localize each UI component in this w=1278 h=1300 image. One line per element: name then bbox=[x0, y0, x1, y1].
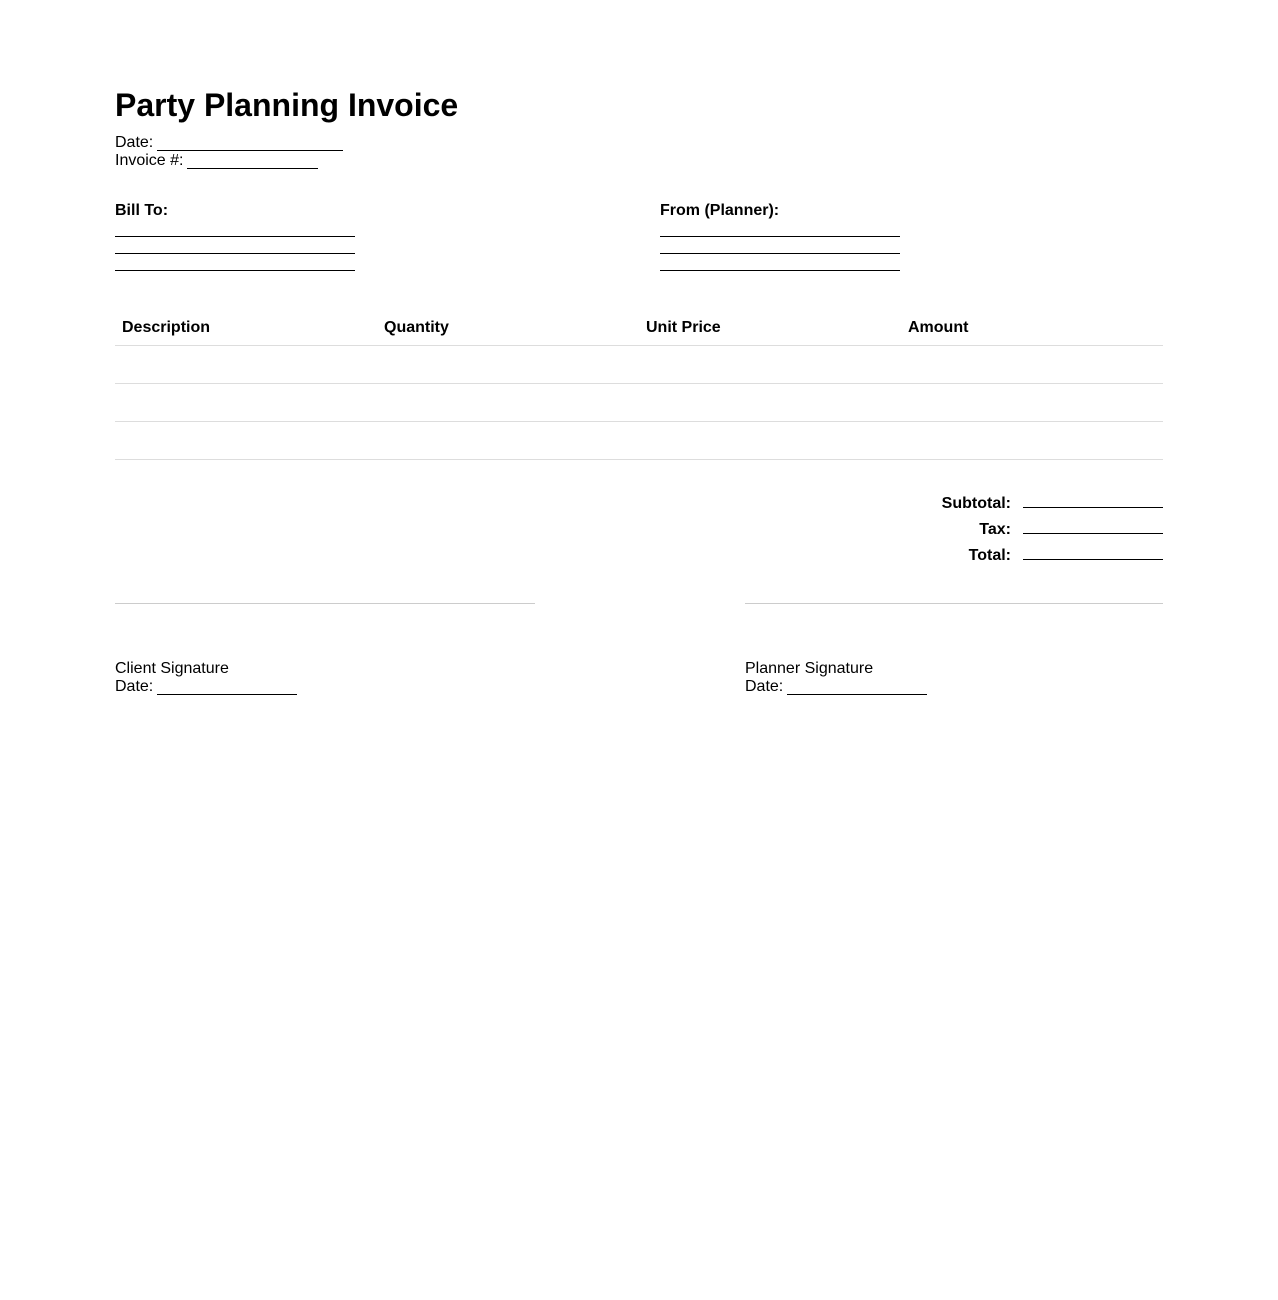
total-blank bbox=[1023, 546, 1163, 560]
header-row: Description Quantity Unit Price Amount bbox=[115, 311, 1163, 346]
from-planner-blank-line-2 bbox=[660, 237, 900, 254]
invoice-date-blank bbox=[157, 137, 343, 151]
item-cell-quantity bbox=[377, 345, 639, 383]
column-header-description: Description bbox=[115, 311, 377, 346]
planner-signature-line bbox=[745, 603, 1163, 604]
page-title: Party Planning Invoice bbox=[115, 87, 1163, 124]
planner-signature-label: Planner Signature bbox=[745, 660, 927, 678]
total-row: Total: bbox=[115, 546, 1163, 572]
line-items-table: Description Quantity Unit Price Amount bbox=[115, 311, 1163, 460]
planner-signature-date-label: Date: bbox=[745, 678, 783, 695]
bill-to-blank-line-2 bbox=[115, 237, 355, 254]
bill-to-blank-line-1 bbox=[115, 220, 355, 237]
signatures-section: Client Signature Date: Planner Signature… bbox=[115, 660, 1163, 696]
item-cell-amount bbox=[901, 345, 1163, 383]
item-row bbox=[115, 345, 1163, 383]
column-header-quantity: Quantity bbox=[377, 311, 639, 346]
parties-section: Bill To: From (Planner): bbox=[115, 202, 1163, 271]
invoice-number-label: Invoice #: bbox=[115, 152, 183, 169]
item-cell-amount bbox=[901, 383, 1163, 421]
item-cell-description bbox=[115, 383, 377, 421]
item-row bbox=[115, 383, 1163, 421]
client-signature-date-label: Date: bbox=[115, 678, 153, 695]
client-signature-date-blank bbox=[157, 681, 297, 695]
item-cell-description bbox=[115, 421, 377, 459]
from-planner-blank-line-1 bbox=[660, 220, 900, 237]
item-cell-unit-price bbox=[639, 383, 901, 421]
invoice-date-label: Date: bbox=[115, 134, 153, 151]
subtotal-label: Subtotal: bbox=[942, 495, 1011, 513]
subtotal-blank bbox=[1023, 494, 1163, 508]
bill-to-section: Bill To: bbox=[115, 202, 660, 271]
invoice-number-blank bbox=[187, 155, 318, 169]
from-planner-label: From (Planner): bbox=[660, 202, 900, 220]
signature-lines bbox=[115, 603, 1163, 604]
tax-blank bbox=[1023, 520, 1163, 534]
item-cell-amount bbox=[901, 421, 1163, 459]
planner-signature-block: Planner Signature Date: bbox=[745, 660, 927, 696]
client-signature-block: Client Signature Date: bbox=[115, 660, 745, 696]
bill-to-blank-line-3 bbox=[115, 254, 355, 271]
tax-row: Tax: bbox=[115, 520, 1163, 546]
line-items-body bbox=[115, 345, 1163, 459]
from-planner-section: From (Planner): bbox=[660, 202, 900, 271]
subtotal-row: Subtotal: bbox=[115, 494, 1163, 520]
item-cell-description bbox=[115, 345, 377, 383]
client-signature-date-row: Date: bbox=[115, 678, 745, 696]
total-label: Total: bbox=[969, 547, 1011, 565]
totals-section: Subtotal: Tax: Total: bbox=[115, 494, 1163, 572]
item-cell-unit-price bbox=[639, 421, 901, 459]
client-signature-label: Client Signature bbox=[115, 660, 745, 678]
line-items-header: Description Quantity Unit Price Amount bbox=[115, 311, 1163, 346]
invoice-document: Party Planning Invoice Date: Invoice #: … bbox=[115, 0, 1163, 696]
item-cell-quantity bbox=[377, 421, 639, 459]
planner-signature-date-blank bbox=[787, 681, 927, 695]
column-header-unit-price: Unit Price bbox=[639, 311, 901, 346]
invoice-number-row: Invoice #: bbox=[115, 152, 1163, 170]
tax-label: Tax: bbox=[979, 521, 1011, 539]
item-cell-unit-price bbox=[639, 345, 901, 383]
invoice-date-row: Date: bbox=[115, 134, 1163, 152]
bill-to-label: Bill To: bbox=[115, 202, 660, 220]
planner-signature-date-row: Date: bbox=[745, 678, 927, 696]
item-cell-quantity bbox=[377, 383, 639, 421]
column-header-amount: Amount bbox=[901, 311, 1163, 346]
item-row bbox=[115, 421, 1163, 459]
client-signature-line bbox=[115, 603, 535, 604]
from-planner-blank-line-3 bbox=[660, 254, 900, 271]
